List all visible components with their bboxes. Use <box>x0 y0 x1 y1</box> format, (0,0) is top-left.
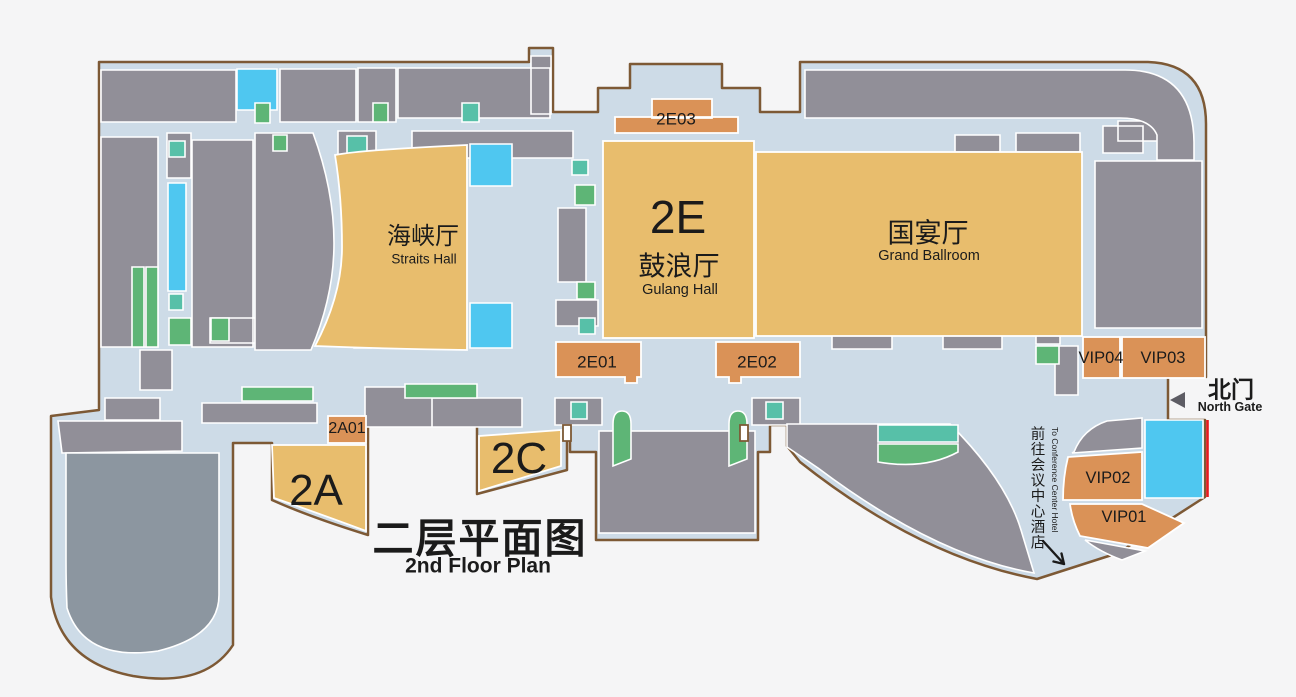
page-title-zh: 二层平面图 <box>373 519 588 560</box>
room-2e03-label: 2E03 <box>656 111 696 128</box>
wall-concave-block <box>255 133 334 350</box>
page-title-en: 2nd Floor Plan <box>405 556 551 577</box>
hotel-route-label-zh: 前往会议中心酒店 <box>1027 426 1048 550</box>
room-2e01-label: 2E01 <box>577 354 617 371</box>
grand-ballroom-label-zh: 国宴厅 <box>888 221 969 248</box>
area-2c-label: 2C <box>491 437 547 481</box>
room-2e02-label: 2E02 <box>737 354 777 371</box>
north-gate-label-zh: 北门 <box>1208 379 1254 402</box>
room-vip04-label: VIP04 <box>1079 350 1124 367</box>
room-vip03-label: VIP03 <box>1141 350 1186 367</box>
wall-slanted-slab <box>58 421 182 453</box>
gulang-hall-code: 2E <box>650 194 706 240</box>
north-gate-arrow-icon <box>1170 392 1185 408</box>
theater-fan <box>66 453 219 653</box>
north-gate-label-en: North Gate <box>1198 401 1263 414</box>
room-vip02-label: VIP02 <box>1086 470 1131 487</box>
straits-hall-label-en: Straits Hall <box>391 252 456 266</box>
floor-plan-page: 海峡厅 Straits Hall 2E 鼓浪厅 Gulang Hall 国宴厅 … <box>0 0 1296 697</box>
room-2a01-label: 2A01 <box>328 421 365 437</box>
room-vip01-label: VIP01 <box>1102 509 1147 526</box>
straits-hall-label-zh: 海峡厅 <box>387 225 459 249</box>
hotel-route-label-en: To Conference Center Hotel <box>1050 427 1060 532</box>
escalator-left <box>613 411 631 466</box>
gulang-hall-label-en: Gulang Hall <box>642 283 718 298</box>
gulang-hall-label-zh: 鼓浪厅 <box>639 254 720 281</box>
area-2a-label: 2A <box>289 469 343 513</box>
grand-ballroom-label-en: Grand Ballroom <box>878 249 980 264</box>
